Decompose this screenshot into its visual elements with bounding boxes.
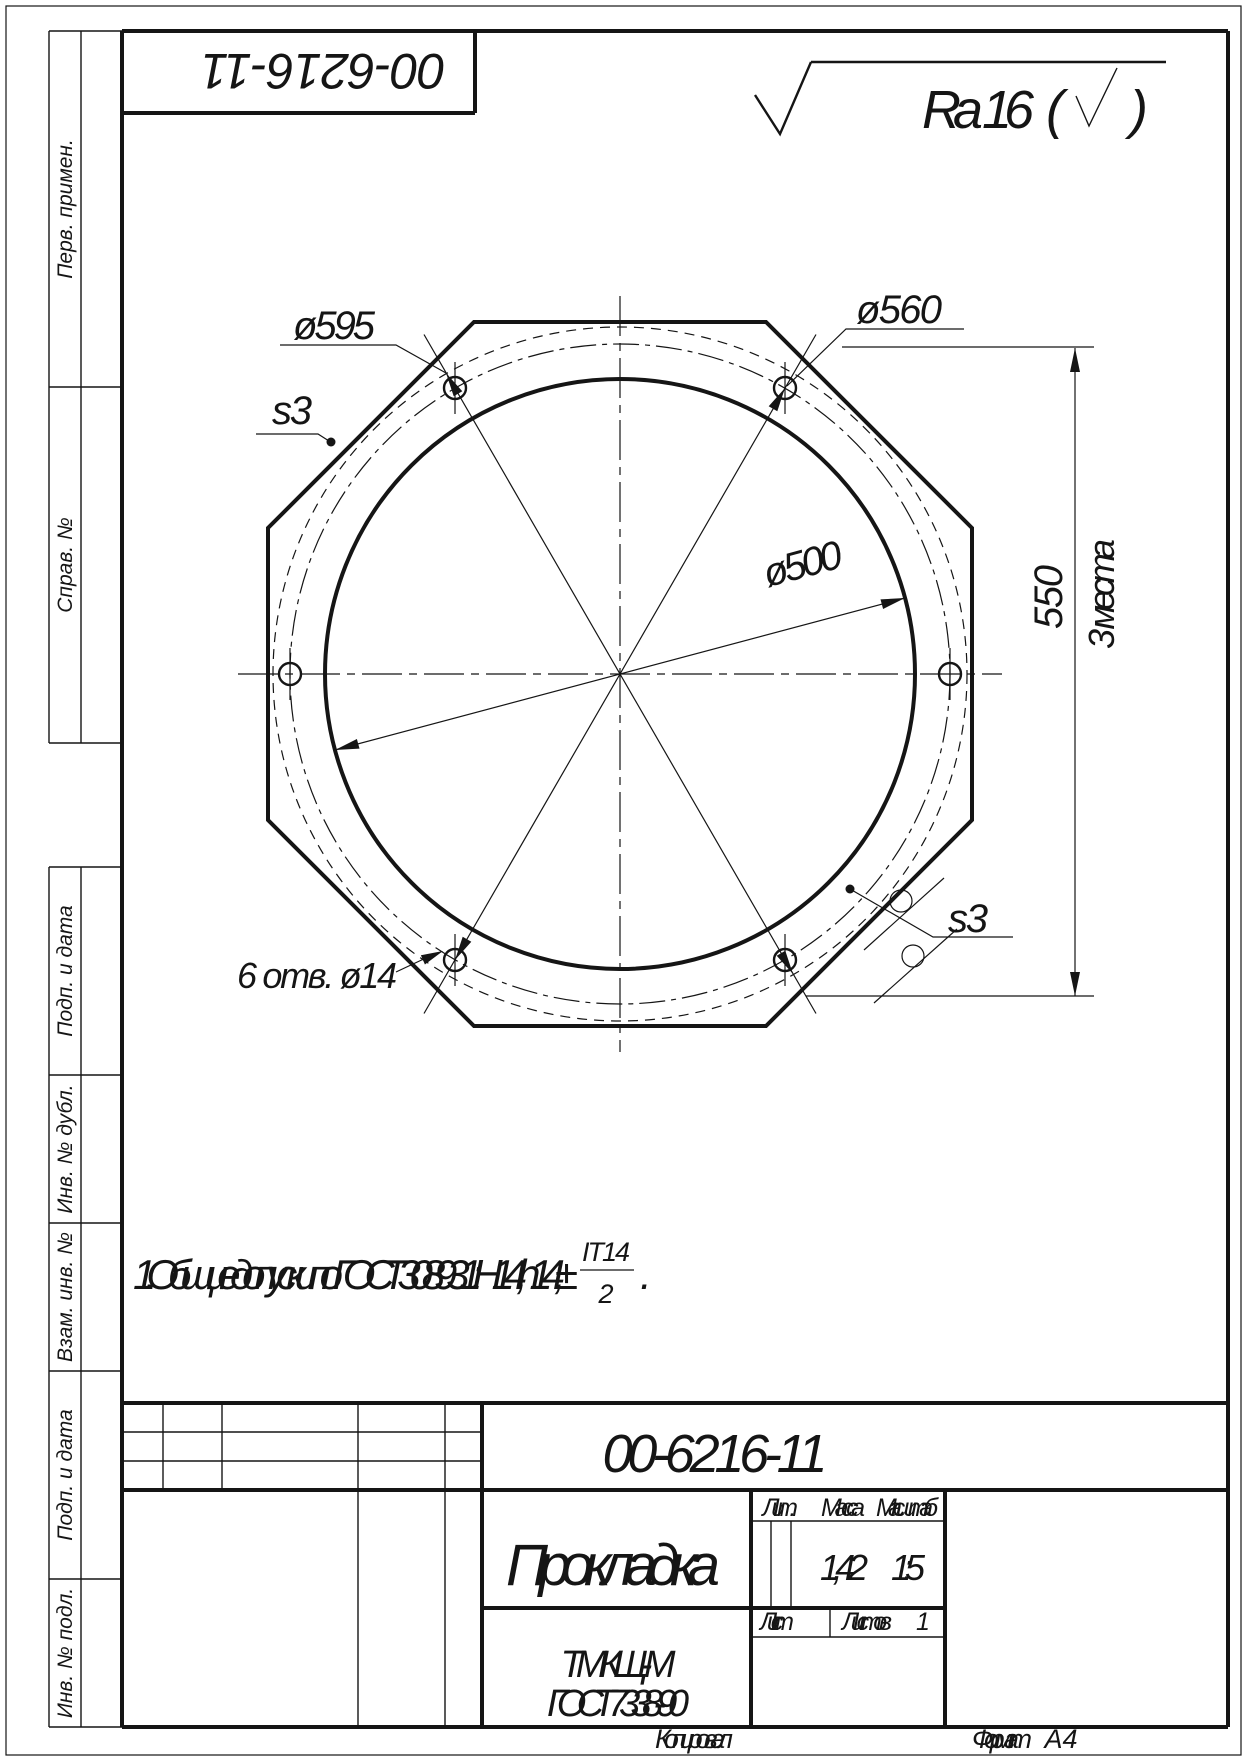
margin-label-inv-dubl: Инв. № дубл. <box>54 1084 77 1213</box>
note-period: . <box>640 1251 652 1298</box>
note-fraction-denominator: 2 <box>597 1279 613 1309</box>
holes-note-label: 6 отв. ø14 <box>237 955 397 996</box>
surface-roughness-mark: Ra 16 ( ) <box>755 62 1166 140</box>
margin-column-labels: Перв. примен. Справ. № Подп. и дата Инв.… <box>54 139 77 1718</box>
format-label: Формат <box>972 1724 1032 1754</box>
dim-label-560: ø560 <box>856 288 942 332</box>
thickness-label-upper: s3 <box>272 389 312 433</box>
title-block-content: 00-6216-11 Прокладка Лит. Масса Масштаб … <box>506 1424 939 1725</box>
dim-label-595: ø595 <box>293 304 376 348</box>
top-designation-stamp: 00-6216-11 <box>122 31 475 113</box>
material-line-1: ТМКЩ-М <box>561 1644 676 1686</box>
roughness-paren-open: ( <box>1046 80 1069 140</box>
roughness-radical-icon <box>755 62 811 134</box>
margin-label-podp-data-1: Подп. и дата <box>54 905 77 1036</box>
mass-header: Масса <box>821 1494 865 1522</box>
format-value: А4 <box>1042 1724 1077 1754</box>
dim-label-550: 550 <box>1027 565 1071 629</box>
sheet-label: Лист <box>758 1608 794 1636</box>
arrowhead <box>335 739 360 750</box>
roughness-check-icon <box>1076 68 1117 126</box>
lit-header: Лит. <box>760 1494 797 1522</box>
sheets-label: Листов <box>840 1608 892 1636</box>
part-name: Прокладка <box>506 1533 720 1598</box>
sheets-value: 1 <box>916 1608 930 1636</box>
copied-label: Копировал <box>655 1724 733 1754</box>
thickness-callout-upper: s3 <box>256 389 336 447</box>
note-fraction-numerator: IT14 <box>582 1237 630 1267</box>
margin-label-vzam-inv: Взам. инв. № <box>54 1232 77 1362</box>
drawing-sheet: 00-6216-11 Ra 16 ( ) Перв. примен. Справ… <box>0 0 1247 1761</box>
thickness-label-lower: s3 <box>948 897 988 941</box>
arrowhead <box>881 598 906 609</box>
thickness-callout-lower: s3 <box>846 878 1014 1003</box>
material-line-2: ГОСТ 7338-90 <box>547 1683 689 1725</box>
dim-label-550-places: 3 места <box>1081 539 1122 649</box>
mass-value: 1,42 <box>820 1547 868 1588</box>
margin-label-perv-primen: Перв. примен. <box>54 139 77 279</box>
section-circle-icon <box>902 945 924 967</box>
roughness-paren-close: ) <box>1124 80 1148 140</box>
leader-595 <box>280 345 446 373</box>
gost-drawing-canvas: 00-6216-11 Ra 16 ( ) Перв. примен. Справ… <box>0 0 1247 1761</box>
scale-header: Масштаб <box>876 1494 939 1522</box>
holes-callout: 6 отв. ø14 <box>237 951 443 996</box>
part-view: ø500 ø595 ø560 550 3 места 6 отв. ø14 <box>237 288 1122 1052</box>
title-designation: 00-6216-11 <box>603 1424 828 1484</box>
general-note: 1. Общие допуски по ГОСТ 30893.1: Н14, h… <box>133 1237 652 1309</box>
roughness-value: Ra 16 <box>922 80 1035 140</box>
margin-label-sprav: Справ. № <box>54 517 77 612</box>
note-text: 1. Общие допуски по ГОСТ 30893.1: Н14, h… <box>133 1251 578 1298</box>
scale-value: 1:5 <box>891 1547 926 1588</box>
margin-label-inv-podl: Инв. № подл. <box>54 1588 77 1718</box>
dim-label-500: ø500 <box>758 533 847 596</box>
margin-label-podp-data-2: Подп. и дата <box>54 1409 77 1540</box>
page-border <box>6 6 1241 1755</box>
stamp-designation-text: 00-6216-11 <box>201 43 446 99</box>
leader-dot <box>327 438 336 447</box>
